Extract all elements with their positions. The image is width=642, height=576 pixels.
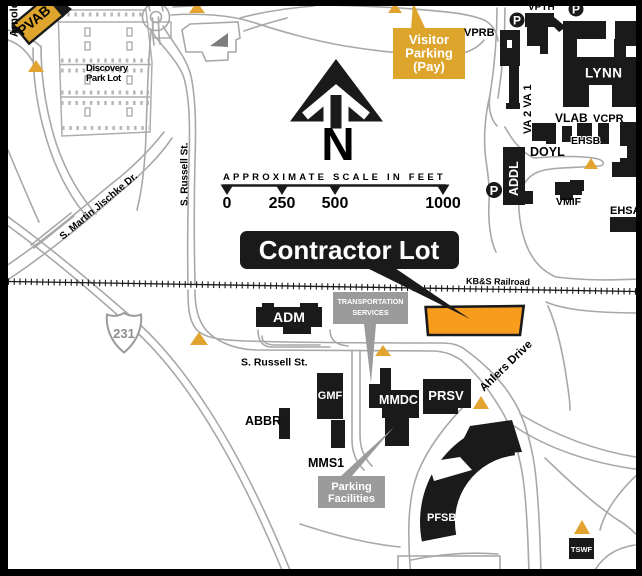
svg-text:S. Russell St.: S. Russell St. bbox=[241, 357, 308, 369]
svg-text:TSWF: TSWF bbox=[571, 545, 593, 554]
svg-text:VCPR: VCPR bbox=[593, 113, 624, 125]
svg-text:VLAB: VLAB bbox=[555, 111, 588, 125]
svg-text:0: 0 bbox=[223, 195, 232, 212]
svg-text:APPROXIMATE SCALE IN FEET: APPROXIMATE SCALE IN FEET bbox=[223, 172, 446, 183]
svg-text:KB&S Railroad: KB&S Railroad bbox=[466, 276, 530, 287]
svg-text:P: P bbox=[513, 14, 521, 28]
svg-text:Park Lot: Park Lot bbox=[86, 73, 122, 84]
svg-text:PRSV: PRSV bbox=[428, 388, 464, 403]
svg-text:P: P bbox=[490, 183, 499, 198]
svg-text:VPRB: VPRB bbox=[464, 27, 495, 39]
svg-text:S. Russell St.: S. Russell St. bbox=[180, 142, 191, 206]
svg-text:500: 500 bbox=[322, 195, 349, 212]
svg-text:250: 250 bbox=[269, 195, 296, 212]
svg-text:GMF: GMF bbox=[318, 390, 343, 402]
svg-text:Arnold: Arnold bbox=[9, 2, 21, 37]
svg-text:TRANSPORTATION: TRANSPORTATION bbox=[337, 297, 403, 306]
svg-text:MMDC: MMDC bbox=[379, 393, 418, 407]
svg-text:ADM: ADM bbox=[273, 309, 305, 325]
svg-text:VMIF: VMIF bbox=[556, 196, 582, 208]
svg-text:Facilities: Facilities bbox=[328, 493, 375, 505]
svg-text:Parking: Parking bbox=[331, 481, 371, 493]
svg-text:ADDL: ADDL bbox=[507, 161, 521, 196]
svg-text:LYNN: LYNN bbox=[585, 66, 623, 81]
svg-text:(Pay): (Pay) bbox=[413, 59, 445, 74]
svg-text:MMS1: MMS1 bbox=[308, 456, 344, 470]
svg-text:231: 231 bbox=[113, 326, 135, 341]
svg-text:N: N bbox=[321, 118, 354, 170]
svg-text:1000: 1000 bbox=[425, 195, 461, 212]
svg-text:DOYL: DOYL bbox=[530, 145, 565, 159]
svg-text:Contractor Lot: Contractor Lot bbox=[259, 235, 440, 265]
svg-text:SERVICES: SERVICES bbox=[352, 308, 388, 317]
svg-text:VA 2 VA 1: VA 2 VA 1 bbox=[522, 84, 534, 134]
svg-text:ABBR: ABBR bbox=[245, 414, 281, 428]
svg-text:PFSB: PFSB bbox=[427, 512, 456, 524]
svg-text:EHSB: EHSB bbox=[571, 135, 601, 147]
